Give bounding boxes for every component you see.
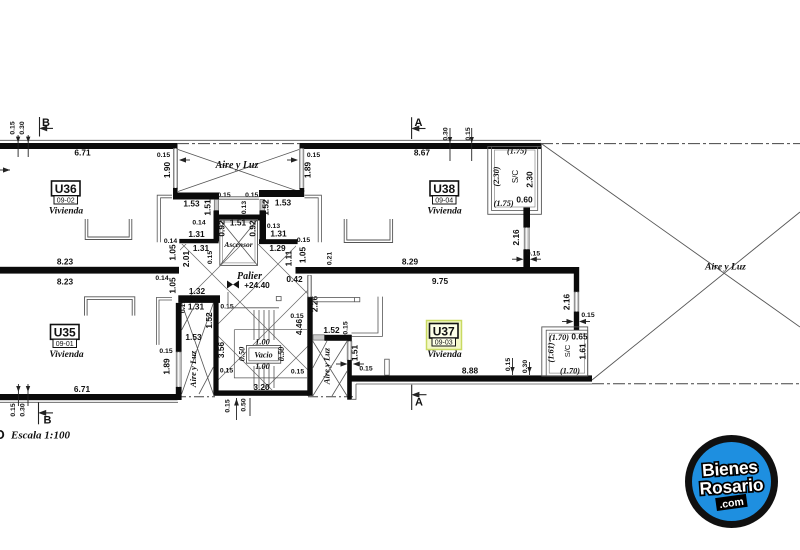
svg-text:Aire y Luz: Aire y Luz (322, 347, 332, 385)
svg-text:(1.75): (1.75) (507, 147, 527, 156)
svg-text:3.56: 3.56 (216, 342, 226, 359)
svg-text:0.15: 0.15 (225, 399, 232, 412)
svg-text:0.15: 0.15 (157, 152, 170, 159)
svg-text:A: A (415, 397, 423, 409)
svg-text:0.65: 0.65 (571, 332, 588, 342)
svg-text:0.60: 0.60 (516, 195, 533, 205)
svg-text:S/C: S/C (563, 344, 572, 357)
svg-text:(1.70): (1.70) (549, 333, 569, 342)
svg-text:0.15: 0.15 (465, 127, 472, 140)
svg-text:0.15: 0.15 (217, 192, 230, 199)
svg-text:0.30: 0.30 (443, 127, 450, 140)
svg-text:0.15: 0.15 (10, 121, 17, 134)
svg-text:0.15: 0.15 (359, 366, 372, 373)
svg-text:1.89: 1.89 (303, 162, 313, 179)
svg-text:0.14: 0.14 (192, 219, 205, 226)
svg-text:1.53: 1.53 (275, 198, 292, 208)
svg-text:0.50: 0.50 (241, 398, 248, 411)
svg-text:0.15: 0.15 (581, 312, 594, 319)
svg-text:Vivienda: Vivienda (49, 207, 84, 217)
svg-text:0.15: 0.15 (10, 403, 17, 416)
svg-text:0.30: 0.30 (522, 360, 529, 373)
svg-text:Vacio: Vacio (254, 351, 272, 360)
svg-text:0.15: 0.15 (297, 237, 310, 244)
svg-text:1.61: 1.61 (578, 343, 588, 360)
svg-text:1.00: 1.00 (255, 362, 270, 371)
svg-text:(1.75): (1.75) (494, 199, 514, 208)
svg-text:Escala 1:100: Escala 1:100 (10, 430, 70, 442)
svg-text:SO: SO (0, 427, 5, 442)
svg-text:A: A (415, 117, 423, 129)
svg-text:U36: U36 (55, 182, 77, 196)
svg-text:1.00: 1.00 (255, 337, 270, 346)
svg-text:S/C: S/C (511, 170, 520, 184)
svg-text:0.15: 0.15 (291, 369, 304, 376)
svg-text:8.23: 8.23 (57, 277, 74, 287)
svg-text:Vivienda: Vivienda (427, 350, 462, 360)
svg-text:0.15: 0.15 (220, 304, 233, 311)
svg-text:+24.40: +24.40 (244, 280, 270, 290)
svg-text:0.15: 0.15 (245, 192, 258, 199)
svg-text:1.05: 1.05 (168, 277, 178, 294)
svg-text:0.15: 0.15 (527, 251, 540, 258)
svg-text:0.30: 0.30 (20, 403, 27, 416)
svg-text:2.16: 2.16 (511, 229, 521, 246)
svg-text:8.88: 8.88 (462, 365, 479, 375)
svg-text:Aire y Luz: Aire y Luz (188, 350, 198, 388)
svg-text:1.53: 1.53 (183, 199, 200, 209)
svg-text:8.29: 8.29 (402, 257, 419, 267)
svg-text:09-04: 09-04 (435, 198, 453, 205)
svg-text:6.71: 6.71 (74, 148, 91, 158)
svg-text:0.21: 0.21 (327, 252, 334, 265)
svg-text:1.51: 1.51 (203, 199, 213, 216)
svg-text:0.30: 0.30 (19, 121, 26, 134)
svg-text:0.50: 0.50 (277, 347, 286, 362)
svg-text:0.15: 0.15 (307, 152, 320, 159)
svg-text:0.92: 0.92 (217, 220, 227, 237)
svg-text:4.46: 4.46 (294, 319, 304, 336)
svg-text:09-01: 09-01 (56, 341, 74, 348)
svg-text:1.52: 1.52 (323, 325, 340, 335)
svg-text:1.31: 1.31 (270, 229, 287, 239)
svg-text:0.15: 0.15 (343, 321, 350, 334)
svg-text:09-02: 09-02 (57, 198, 75, 205)
svg-text:3.20: 3.20 (253, 382, 270, 392)
svg-text:1.31: 1.31 (188, 302, 205, 312)
svg-text:9.75: 9.75 (432, 276, 449, 286)
svg-text:1.89: 1.89 (162, 358, 172, 375)
svg-text:1.11: 1.11 (284, 250, 294, 266)
svg-text:2.01: 2.01 (181, 251, 191, 268)
svg-text:0.15: 0.15 (505, 358, 512, 371)
svg-text:(1.61): (1.61) (547, 342, 556, 362)
svg-text:0.42: 0.42 (286, 274, 303, 284)
svg-text:1.05: 1.05 (298, 247, 308, 264)
svg-text:Aire y Luz: Aire y Luz (215, 160, 259, 171)
svg-text:1.31: 1.31 (188, 229, 205, 239)
svg-text:Vivienda: Vivienda (49, 350, 84, 360)
svg-text:0.13: 0.13 (241, 201, 248, 214)
svg-text:B: B (44, 415, 52, 427)
svg-text:0.15: 0.15 (159, 348, 172, 355)
svg-text:2.26: 2.26 (310, 296, 320, 313)
svg-text:0.14: 0.14 (164, 238, 177, 245)
svg-text:8.67: 8.67 (414, 148, 431, 158)
svg-text:0.15: 0.15 (207, 251, 214, 264)
svg-text:U37: U37 (433, 324, 455, 338)
svg-text:U38: U38 (433, 182, 455, 196)
svg-text:1.53: 1.53 (185, 332, 202, 342)
svg-text:Aire y Luz: Aire y Luz (704, 263, 746, 273)
svg-text:1.51: 1.51 (230, 218, 247, 228)
svg-text:0.50: 0.50 (238, 347, 247, 362)
svg-text:(1.70): (1.70) (560, 367, 580, 376)
svg-text:0.92: 0.92 (248, 220, 258, 237)
svg-text:U35: U35 (54, 326, 76, 340)
svg-text:Vivienda: Vivienda (427, 207, 462, 217)
svg-text:2.30: 2.30 (525, 171, 535, 188)
svg-text:1.05: 1.05 (168, 244, 178, 261)
svg-text:1.90: 1.90 (162, 162, 172, 179)
svg-text:6.71: 6.71 (74, 384, 91, 394)
svg-text:09-03: 09-03 (435, 340, 453, 347)
svg-text:2.16: 2.16 (562, 294, 572, 311)
svg-text:(2.30): (2.30) (492, 166, 501, 186)
svg-text:8.23: 8.23 (57, 257, 74, 267)
svg-text:B: B (42, 117, 50, 129)
svg-text:1.51: 1.51 (350, 345, 360, 362)
svg-text:0.15: 0.15 (220, 368, 233, 375)
svg-text:1.32: 1.32 (189, 286, 206, 296)
